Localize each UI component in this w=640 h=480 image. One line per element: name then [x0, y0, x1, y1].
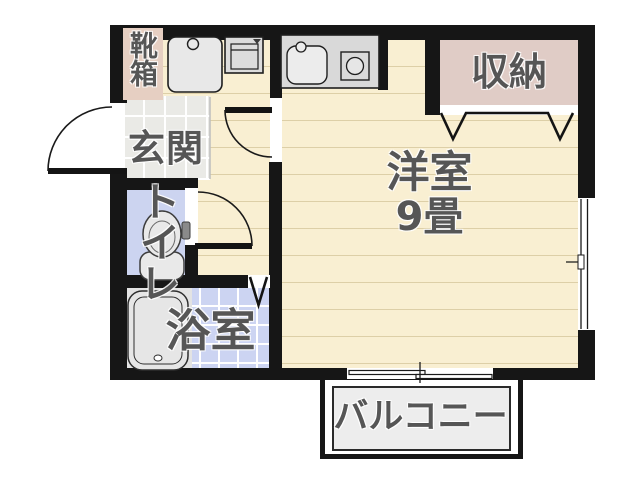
balcony-label: バルコニー: [328, 392, 513, 434]
bathroom-label: 浴室: [153, 300, 268, 352]
genkan-label: 玄関: [118, 118, 214, 172]
entrance-door-icon: [48, 107, 127, 174]
wall-right-lower: [578, 330, 595, 380]
wall-closet-left: [425, 25, 440, 115]
shoe-box-label: 靴箱: [126, 31, 162, 101]
floor-plan: 靴箱 玄関 トイレ 浴室 洋室 9畳 収納 バルコニー: [0, 0, 640, 480]
opening-closet-doors: [440, 105, 578, 115]
opening-toilet-door: [185, 188, 198, 245]
opening-bath-door: [248, 275, 270, 288]
wall-corridor-lower: [269, 162, 282, 368]
closet-label: 収納: [440, 46, 578, 90]
wall-right-upper: [578, 25, 595, 198]
main-room-size: 9畳: [352, 196, 507, 239]
wall-corridor-upper: [270, 25, 282, 98]
main-room-label: 洋室 9畳: [352, 150, 507, 240]
main-room-name: 洋室: [352, 150, 507, 196]
wall-top: [110, 25, 595, 40]
wall-kitchen-stub: [378, 25, 388, 90]
opening-balcony-door: [347, 368, 493, 379]
